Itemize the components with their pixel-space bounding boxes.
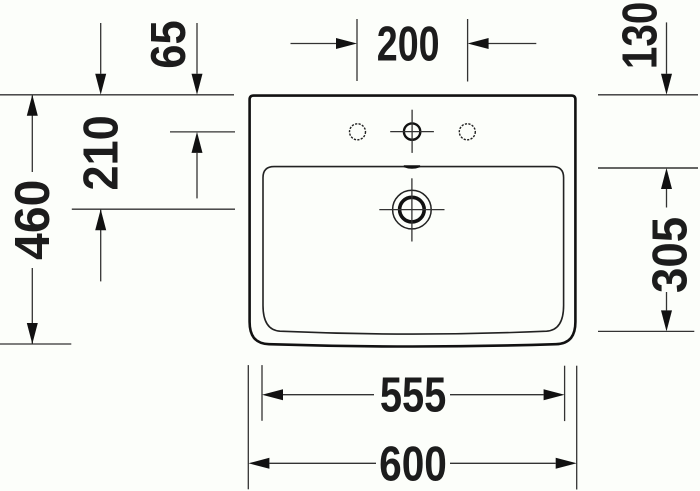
svg-text:555: 555 — [380, 368, 447, 423]
svg-text:600: 600 — [379, 436, 447, 491]
svg-text:460: 460 — [5, 180, 60, 260]
svg-text:65: 65 — [141, 20, 196, 68]
svg-text:305: 305 — [642, 217, 697, 293]
svg-text:210: 210 — [74, 115, 129, 190]
svg-text:130: 130 — [612, 2, 667, 69]
svg-text:200: 200 — [377, 17, 440, 72]
